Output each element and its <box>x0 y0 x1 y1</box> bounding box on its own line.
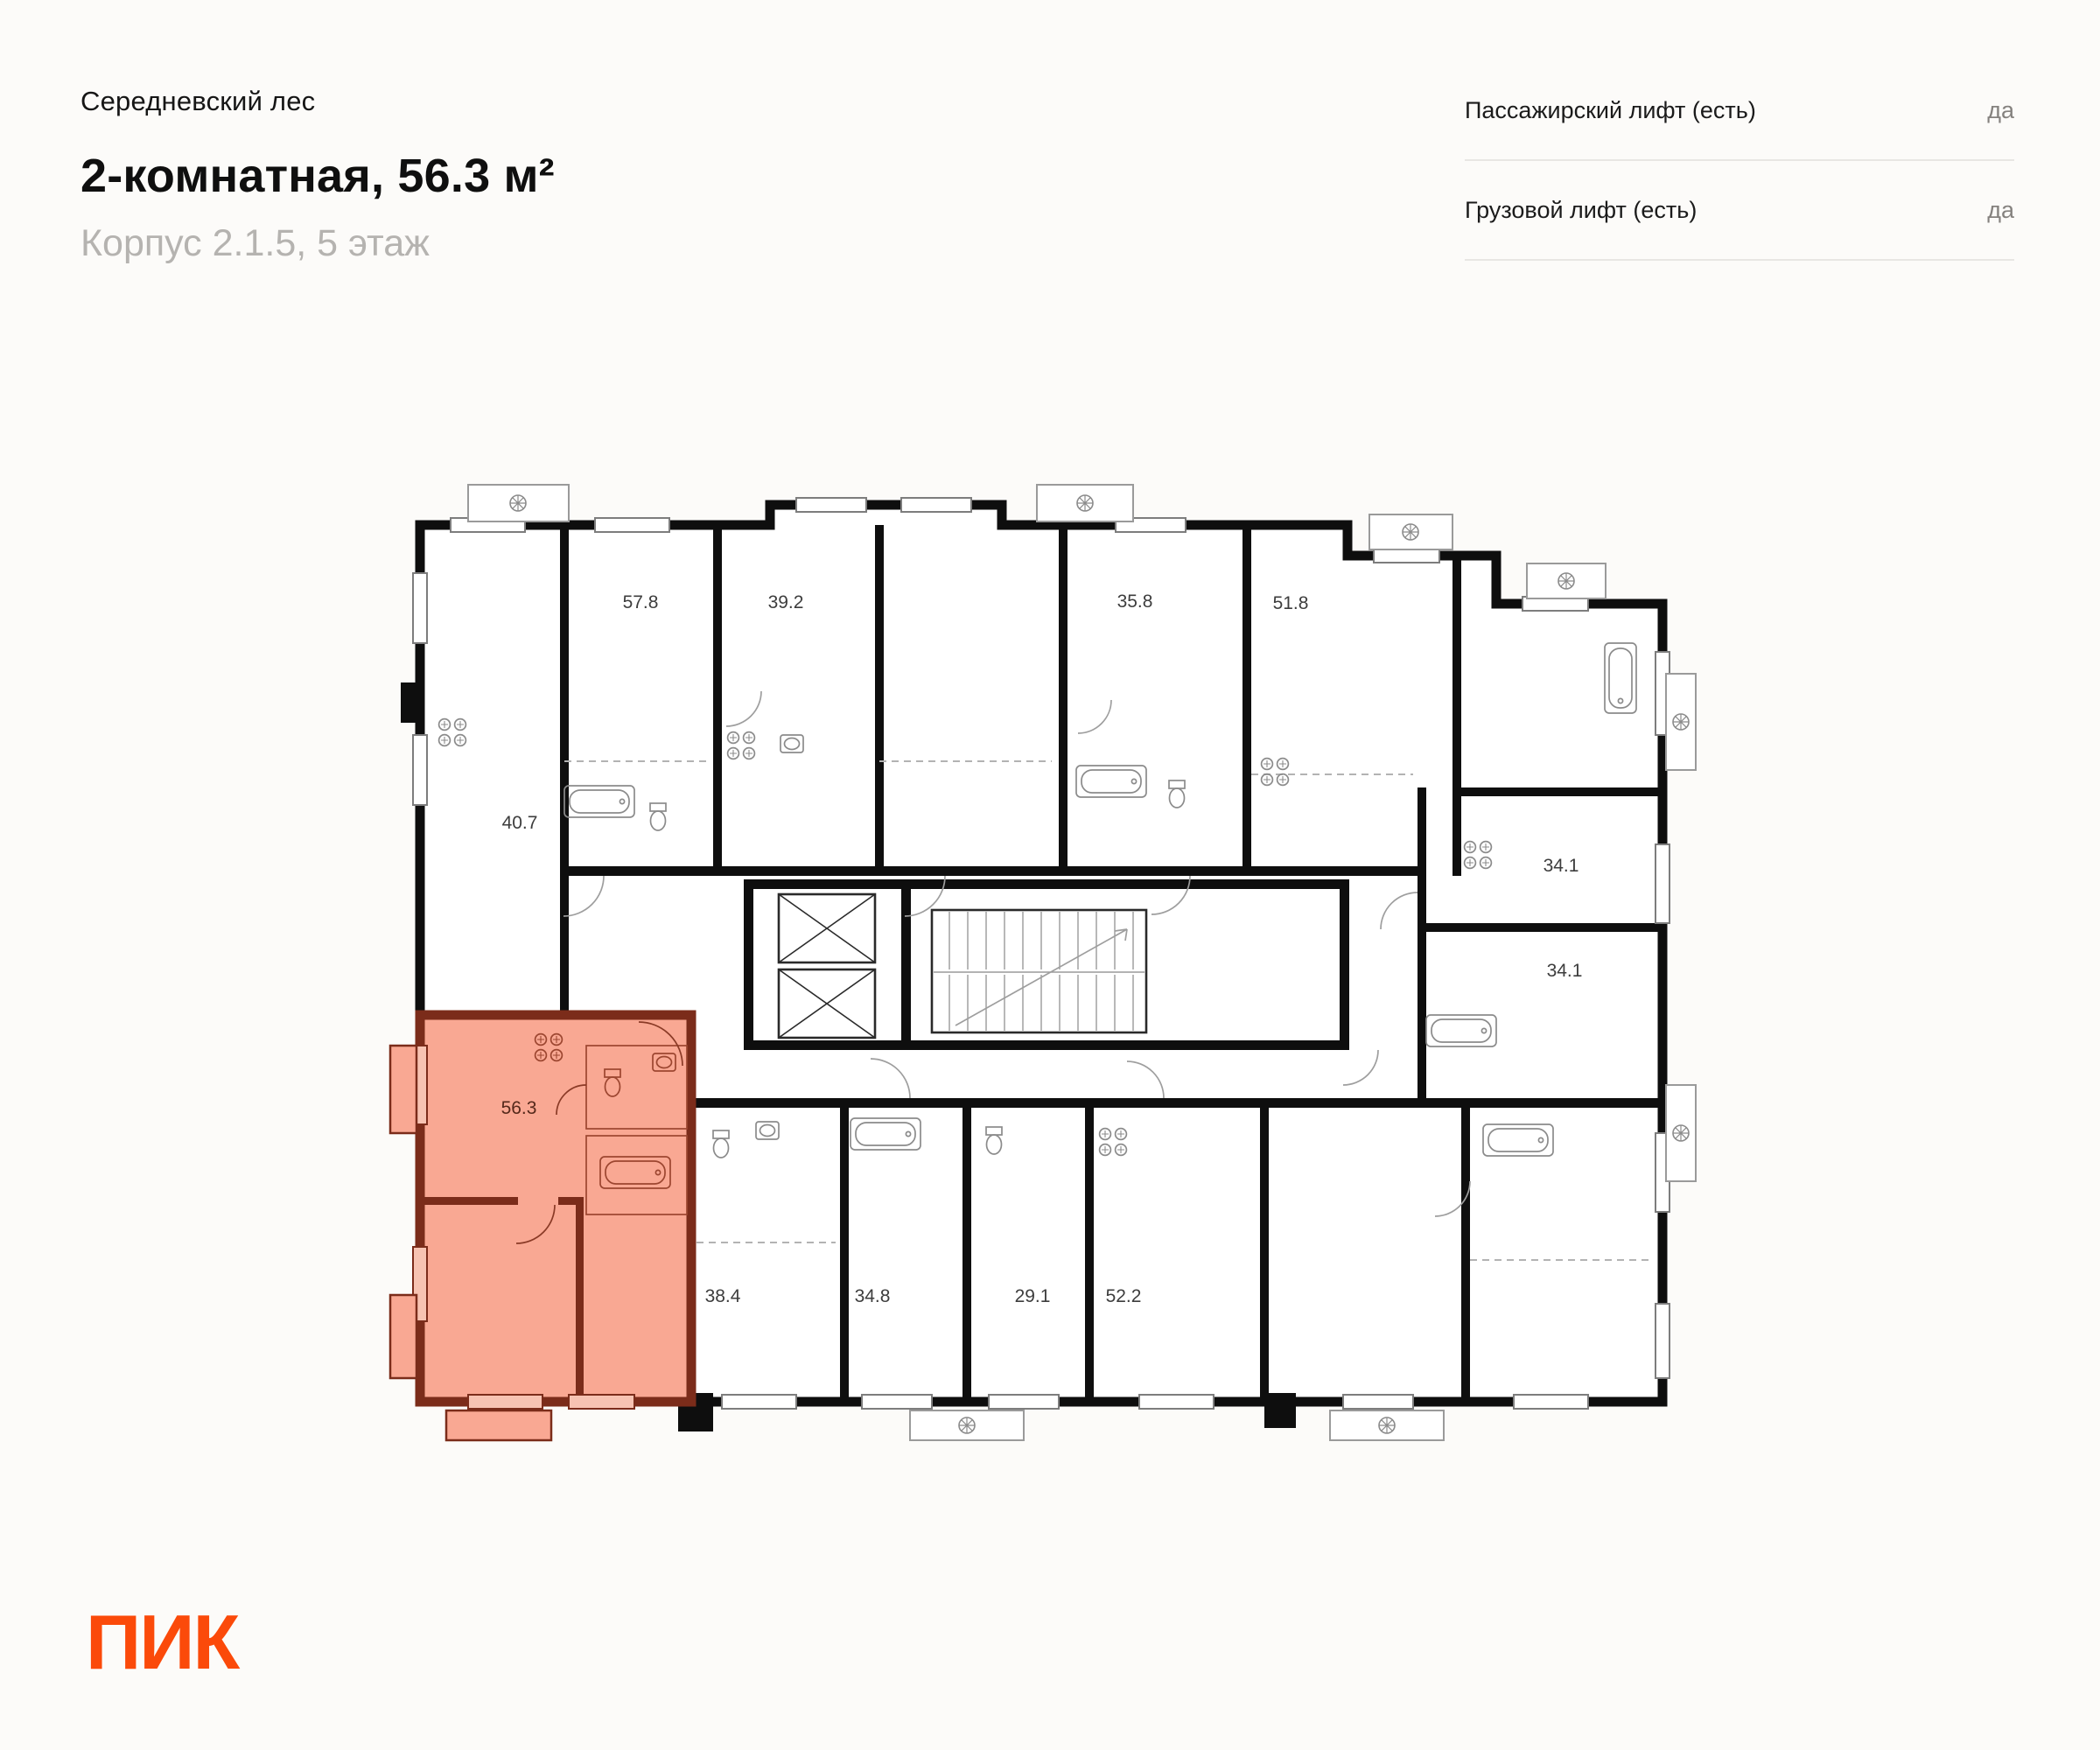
project-name: Середневский лес <box>80 86 555 117</box>
unit-area-label: 34.1 <box>1543 856 1579 876</box>
page-subtitle: Корпус 2.1.5, 5 этаж <box>80 222 555 265</box>
unit-area-label: 34.8 <box>855 1286 891 1306</box>
unit-area-label: 40.7 <box>502 813 538 833</box>
cargo-lift-label: Грузовой лифт (есть) <box>1465 197 1697 224</box>
floor-plan: 40.757.839.235.851.834.134.156.338.434.8… <box>385 472 1706 1444</box>
unit-area-label: 52.2 <box>1106 1286 1142 1306</box>
unit-area-label: 39.2 <box>768 592 804 612</box>
unit-area-label: 35.8 <box>1117 591 1153 612</box>
unit-area-label: 57.8 <box>623 592 659 612</box>
lift-info-panel: Пассажирский лифт (есть) да Грузовой лиф… <box>1465 61 2014 261</box>
stairwell <box>932 910 1146 1032</box>
page-title: 2-комнатная, 56.3 м² <box>80 149 555 203</box>
passenger-lift-value: да <box>1987 97 2014 124</box>
unit-area-label: 29.1 <box>1015 1286 1051 1306</box>
unit-area-label: 51.8 <box>1273 593 1309 613</box>
cargo-lift-value: да <box>1987 197 2014 224</box>
header: Середневский лес 2-комнатная, 56.3 м² Ко… <box>80 86 555 265</box>
unit-area-label: 38.4 <box>705 1286 741 1306</box>
passenger-lift-row: Пассажирский лифт (есть) да <box>1465 61 2014 161</box>
cargo-lift-row: Грузовой лифт (есть) да <box>1465 161 2014 261</box>
unit-area-label-highlighted[interactable]: 56.3 <box>501 1098 537 1118</box>
pik-logo[interactable]: ПИК <box>86 1598 238 1687</box>
passenger-lift-label: Пассажирский лифт (есть) <box>1465 97 1756 124</box>
highlighted-unit[interactable] <box>390 1015 691 1440</box>
floor-plan-svg: 40.757.839.235.851.834.134.156.338.434.8… <box>385 472 1706 1444</box>
unit-area-label: 34.1 <box>1547 961 1583 981</box>
